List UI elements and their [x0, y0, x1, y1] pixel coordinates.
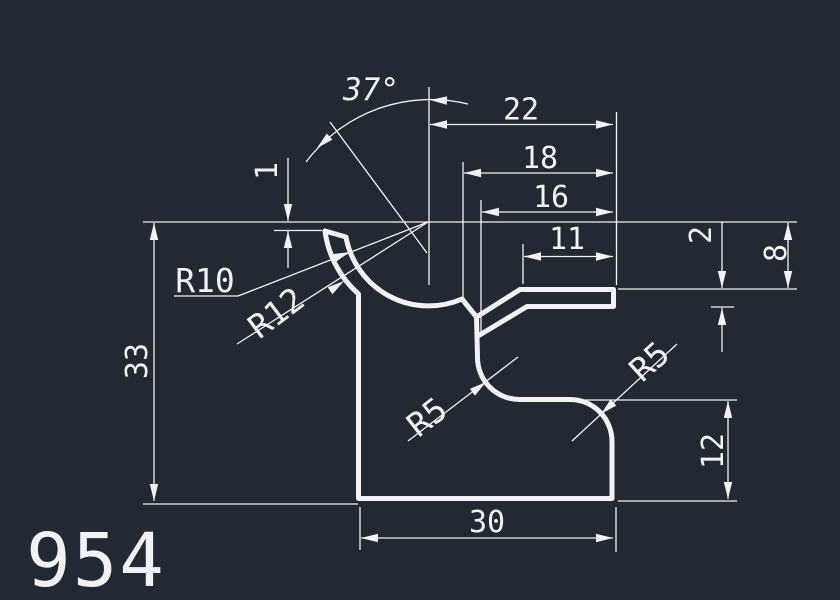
dim-12-text[interactable]: 12 [696, 433, 731, 469]
canvas-background [0, 0, 840, 600]
dim-18-text[interactable]: 18 [522, 141, 558, 176]
dim-16-text[interactable]: 16 [533, 180, 569, 215]
dim-22-text[interactable]: 22 [503, 93, 539, 128]
dim-1-text[interactable]: 1 [250, 162, 285, 180]
dim-30-text[interactable]: 30 [469, 505, 505, 540]
drawing-canvas[interactable]: 22 18 16 11 2 8 1 [0, 0, 840, 600]
dim-8-text[interactable]: 8 [759, 244, 794, 262]
dim-33-text[interactable]: 33 [120, 343, 155, 379]
angle-37-text[interactable]: 37° [342, 72, 399, 108]
r10-text[interactable]: R10 [175, 261, 235, 300]
dim-2-text[interactable]: 2 [684, 226, 719, 244]
dim-11-text[interactable]: 11 [549, 222, 585, 257]
part-number[interactable]: 954 [26, 518, 166, 600]
